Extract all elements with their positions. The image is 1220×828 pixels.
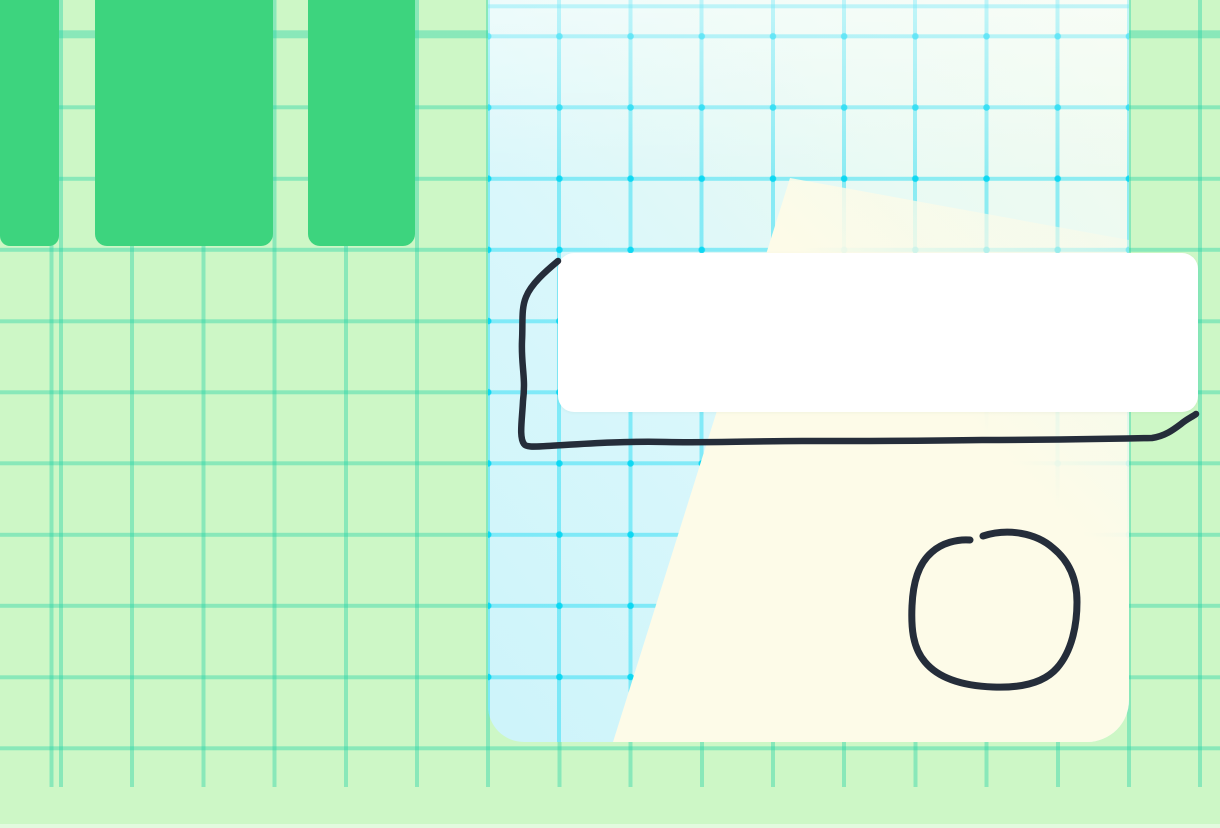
- green-column-shape-2[interactable]: [95, 0, 273, 246]
- green-column-shape-1[interactable]: [0, 0, 59, 246]
- canvas-surface[interactable]: [0, 0, 1220, 828]
- bottom-edge-highlight: [0, 824, 1220, 828]
- green-column-shape-3[interactable]: [308, 0, 415, 246]
- white-card-shape[interactable]: [558, 253, 1198, 412]
